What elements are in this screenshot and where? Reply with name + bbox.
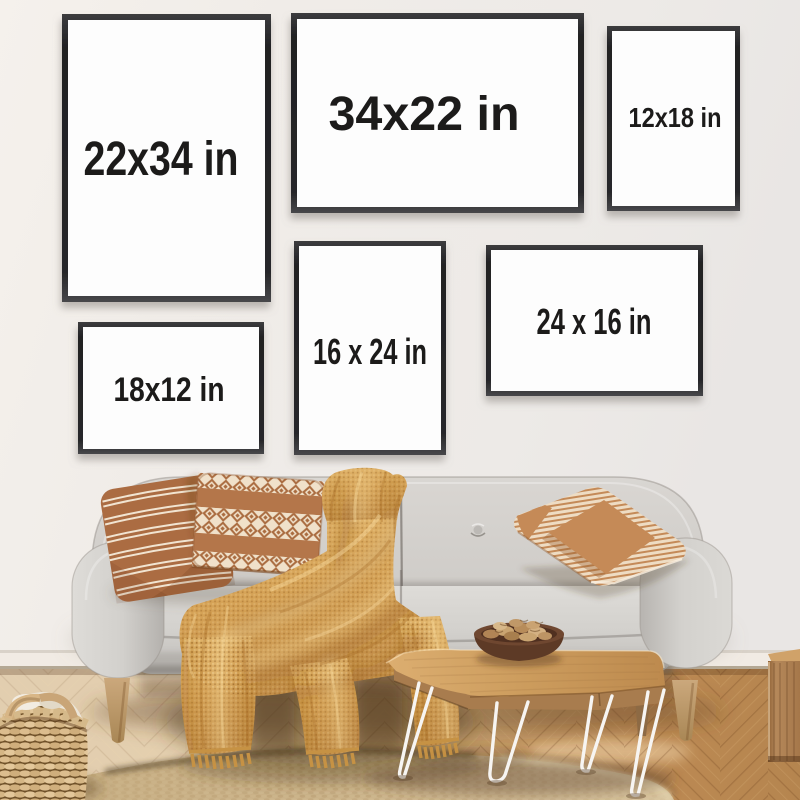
svg-text:24 x 16 in: 24 x 16 in	[537, 301, 652, 342]
svg-text:22x34 in: 22x34 in	[84, 133, 239, 186]
svg-text:34x22 in: 34x22 in	[329, 88, 520, 141]
svg-text:16 x 24 in: 16 x 24 in	[313, 331, 427, 372]
svg-text:12x18 in: 12x18 in	[629, 102, 722, 133]
svg-text:18x12 in: 18x12 in	[114, 371, 225, 409]
